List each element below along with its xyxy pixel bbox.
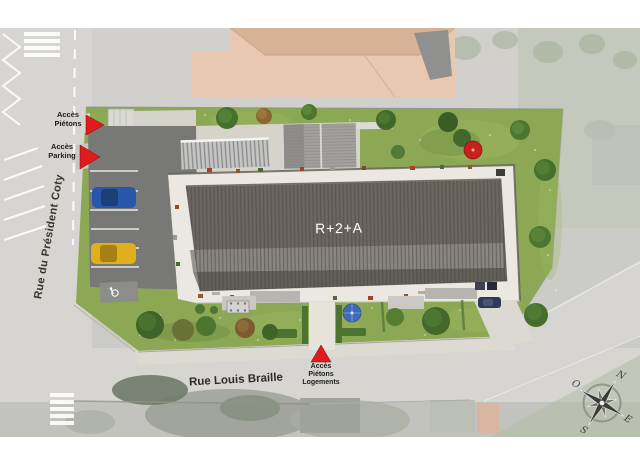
- car-blue: [92, 187, 136, 208]
- bike-shelter: [108, 109, 134, 128]
- carport-canopy: [181, 137, 270, 169]
- site-plan-drawing: N E S O: [0, 0, 640, 470]
- blue-parasol: [343, 304, 361, 322]
- site-plan: N E S O Rue du Président Coty Rue Louis …: [0, 0, 640, 470]
- entrance-path: [309, 302, 335, 350]
- neighbor-building: [192, 28, 455, 98]
- car-yellow: [91, 243, 136, 264]
- disabled-parking-spot: [100, 281, 139, 303]
- red-parasol: [464, 141, 482, 159]
- picnic-table: [227, 301, 249, 313]
